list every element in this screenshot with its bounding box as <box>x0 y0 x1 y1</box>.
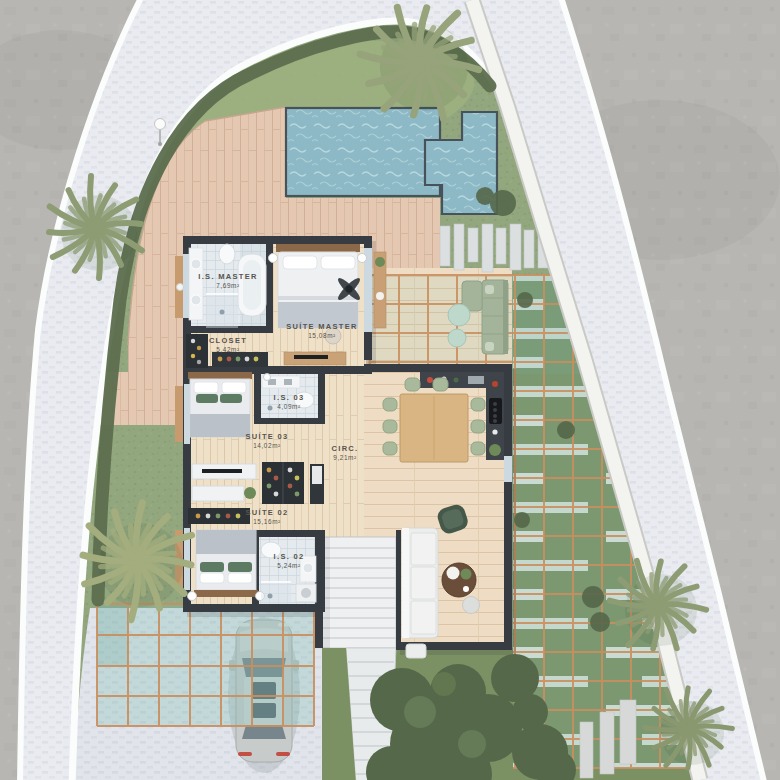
staircase <box>322 537 396 780</box>
deck-sideboard <box>374 252 386 328</box>
site-plan-canvas: I.S. MASTER 7,69m² CLOSET 5,42m² SUÍTE M… <box>0 0 780 780</box>
bed-suite-03 <box>188 372 252 437</box>
toilet-icon <box>219 244 235 264</box>
outdoor-side-table <box>448 304 470 326</box>
bed-suite-02 <box>188 530 265 601</box>
site-plan-rendering <box>0 0 780 780</box>
wardrobe-suite-02 <box>188 508 250 524</box>
wall-light-icon <box>177 284 184 291</box>
master-dresser <box>284 352 346 365</box>
pouf <box>325 328 341 344</box>
main-pool <box>286 108 440 196</box>
toilet-icon <box>294 392 314 408</box>
dining-table <box>400 394 468 462</box>
sofa <box>402 528 438 658</box>
outdoor-side-table <box>448 329 466 347</box>
toilet-icon <box>261 542 281 558</box>
